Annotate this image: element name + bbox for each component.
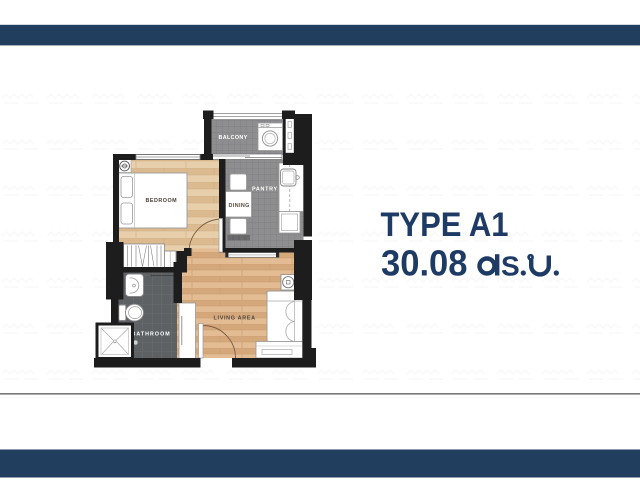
svg-text:30.08: 30.08 bbox=[381, 243, 468, 284]
svg-text:TYPE A1: TYPE A1 bbox=[381, 206, 509, 244]
svg-text:BEDROOM: BEDROOM bbox=[146, 198, 178, 204]
svg-text:PANTRY: PANTRY bbox=[252, 187, 278, 193]
svg-text:LIVING AREA: LIVING AREA bbox=[214, 316, 256, 322]
svg-text:BATHROOM: BATHROOM bbox=[132, 332, 171, 338]
svg-text:DINING: DINING bbox=[229, 203, 250, 209]
svg-text:S: S bbox=[501, 251, 520, 282]
svg-text:BALCONY: BALCONY bbox=[219, 135, 248, 141]
